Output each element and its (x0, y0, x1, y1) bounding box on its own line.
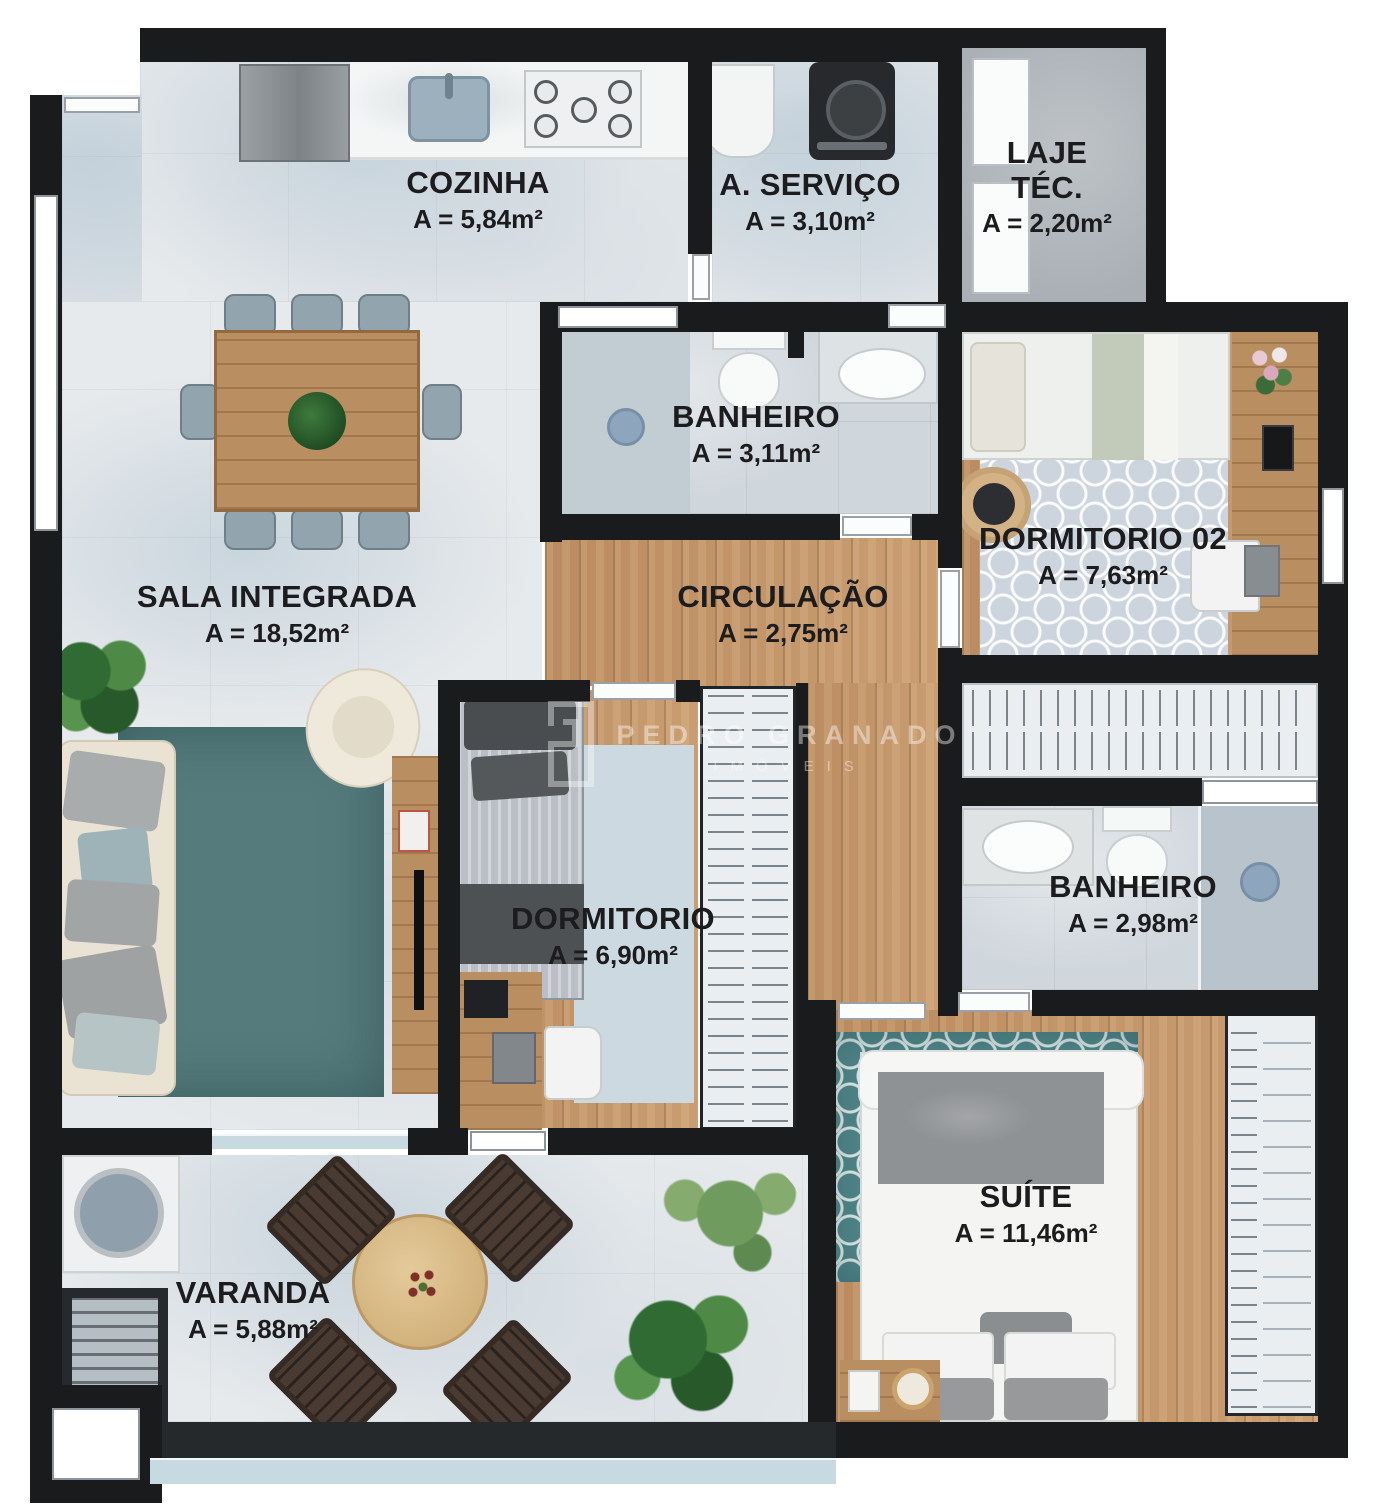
washer-lid-icon (826, 80, 886, 140)
label-sala: SALA INTEGRADA A = 18,52m² (137, 580, 417, 648)
wall (940, 28, 1166, 48)
centerpiece-flowers (403, 1265, 443, 1305)
burner-icon (534, 80, 558, 104)
washing-machine (809, 62, 895, 160)
label-cozinha: COZINHA A = 5,84m² (406, 166, 549, 234)
pillow (970, 342, 1026, 452)
watermark-subtitle: IMÓVEIS (610, 758, 970, 775)
bathroom-suite-window (1202, 780, 1318, 804)
room-area: A = 2,98m² (1049, 909, 1217, 938)
tv (414, 870, 424, 1010)
wall (688, 28, 712, 254)
dining-chair (358, 508, 410, 550)
room-area: A = 18,52m² (137, 619, 417, 648)
wall (30, 1128, 212, 1155)
room-name: DORMITORIO (511, 902, 715, 937)
room-area: A = 3,11m² (672, 439, 840, 468)
watermark-brand: PEDRO GRANADO (610, 720, 970, 751)
laptop (492, 1032, 536, 1084)
suite-door (838, 1002, 926, 1020)
wall (540, 302, 562, 542)
desk-bedroom (458, 972, 542, 1130)
wall (438, 1128, 468, 1155)
mirror-icon (892, 1368, 934, 1410)
kitchen-sink (408, 76, 490, 142)
room-area: A = 6,90m² (511, 941, 715, 970)
wall (1146, 28, 1166, 304)
room-name: LAJE TÉC. (982, 136, 1112, 205)
balcony-sink (74, 1168, 164, 1258)
balcony-railing (150, 1422, 836, 1458)
burner-icon (608, 80, 632, 104)
wall (548, 1128, 698, 1155)
sofa-cushion (71, 1012, 160, 1076)
blanket (878, 1072, 1104, 1184)
label-varanda: VARANDA A = 5,88m² (176, 1276, 331, 1344)
wall (836, 1422, 1348, 1458)
toilet (1102, 806, 1172, 832)
bedroom-window (470, 1131, 546, 1151)
table-plant (288, 392, 346, 450)
palm-plant (655, 1155, 805, 1285)
room-name: DORMITORIO 02 (979, 522, 1227, 557)
poster (1262, 425, 1294, 471)
room-name: SUÍTE (955, 1180, 1098, 1215)
nightstand (840, 1360, 940, 1422)
label-banheiro-social: BANHEIRO A = 3,11m² (672, 400, 840, 468)
living-window (34, 195, 58, 531)
label-banheiro-suite: BANHEIRO A = 2,98m² (1049, 870, 1217, 938)
bedroom-02-door (940, 570, 960, 648)
wall (690, 1128, 836, 1155)
room-name: CIRCULAÇÃO (677, 580, 888, 615)
wall (140, 28, 950, 62)
wall (962, 655, 1348, 683)
sheet-fold (1144, 334, 1178, 460)
stove (524, 70, 642, 148)
closet-hangers (1231, 1020, 1257, 1408)
wall (938, 655, 962, 1000)
wall (808, 1000, 836, 1458)
label-suite: SUÍTE A = 11,46m² (955, 1180, 1098, 1248)
dining-chair (422, 384, 462, 440)
label-dormitorio: DORMITORIO A = 6,90m² (511, 902, 715, 970)
room-area: A = 7,63m² (979, 561, 1227, 590)
dining-chair (291, 508, 343, 550)
washer-panel (817, 142, 887, 150)
room-area: A = 2,20m² (982, 209, 1112, 238)
wall (938, 332, 962, 568)
balcony-sliding-door (212, 1134, 408, 1149)
blanket (1092, 334, 1144, 460)
wall (1032, 990, 1348, 1016)
wall (962, 302, 1348, 332)
books (464, 980, 508, 1018)
magazine (398, 810, 430, 852)
room-area: A = 3,10m² (719, 207, 901, 236)
room-area: A = 5,88m² (176, 1315, 331, 1344)
duct-panel (52, 1408, 140, 1480)
burner-icon (608, 114, 632, 138)
room-area: A = 5,84m² (406, 205, 549, 234)
pouf (973, 483, 1015, 525)
burner-icon (571, 97, 597, 123)
burner-icon (534, 114, 558, 138)
room-name: SALA INTEGRADA (137, 580, 417, 615)
closet-hangers (972, 732, 1308, 770)
flowers (1243, 340, 1299, 400)
armchair-seat (324, 688, 402, 766)
faucet-icon (445, 73, 453, 99)
wall (1318, 302, 1348, 1458)
room-name: BANHEIRO (1049, 870, 1217, 905)
room-area: A = 11,46m² (955, 1219, 1098, 1248)
shower-head-icon (1240, 862, 1280, 902)
book (848, 1370, 880, 1412)
bathroom-social-window (558, 306, 678, 328)
plant (48, 632, 160, 744)
desk-chair (544, 1026, 602, 1100)
room-name: VARANDA (176, 1276, 331, 1311)
bathroom-social-door (842, 516, 912, 536)
bathroom-sink (838, 348, 926, 400)
shower-head-icon (607, 408, 645, 446)
bathroom-sink (982, 820, 1074, 874)
bedroom-02-window (1322, 488, 1344, 584)
wall (540, 514, 840, 540)
entry-door (64, 97, 140, 113)
wall (408, 1128, 438, 1155)
floor-plan: COZINHA A = 5,84m² A. SERVIÇO A = 3,10m²… (0, 0, 1400, 1505)
wall (438, 680, 460, 1140)
kitchen-laundry-door (692, 254, 710, 300)
dining-chair (224, 508, 276, 550)
wall (788, 304, 804, 358)
balcony-glass-rail (150, 1458, 836, 1484)
floor-entry (62, 95, 142, 305)
fridge (239, 64, 350, 162)
wall (962, 778, 1202, 806)
laundry-hall-door (888, 304, 946, 328)
room-area: A = 2,75m² (677, 619, 888, 648)
room-name: A. SERVIÇO (719, 168, 901, 203)
sofa-cushion (62, 750, 167, 833)
bed-bedroom-02 (962, 332, 1230, 460)
closet-shelves (1263, 1020, 1311, 1408)
room-name: BANHEIRO (672, 400, 840, 435)
bush-plant (600, 1272, 770, 1422)
bedroom-door (592, 682, 676, 700)
bathroom-suite-door (958, 992, 1030, 1012)
label-dormitorio-02: DORMITORIO 02 A = 7,63m² (979, 522, 1227, 590)
sofa-cushion (64, 879, 160, 947)
pillow (1004, 1378, 1108, 1420)
label-circulacao: CIRCULAÇÃO A = 2,75m² (677, 580, 888, 648)
wall (938, 990, 958, 1016)
watermark-logo (545, 698, 597, 790)
wall (938, 48, 962, 302)
closet-hangers (972, 690, 1308, 726)
wall (676, 680, 700, 702)
laptop (1244, 545, 1280, 597)
laundry-tank (705, 64, 775, 158)
label-servico: A. SERVIÇO A = 3,10m² (719, 168, 901, 236)
label-laje-tec: LAJE TÉC. A = 2,20m² (982, 136, 1112, 239)
room-name: COZINHA (406, 166, 549, 201)
